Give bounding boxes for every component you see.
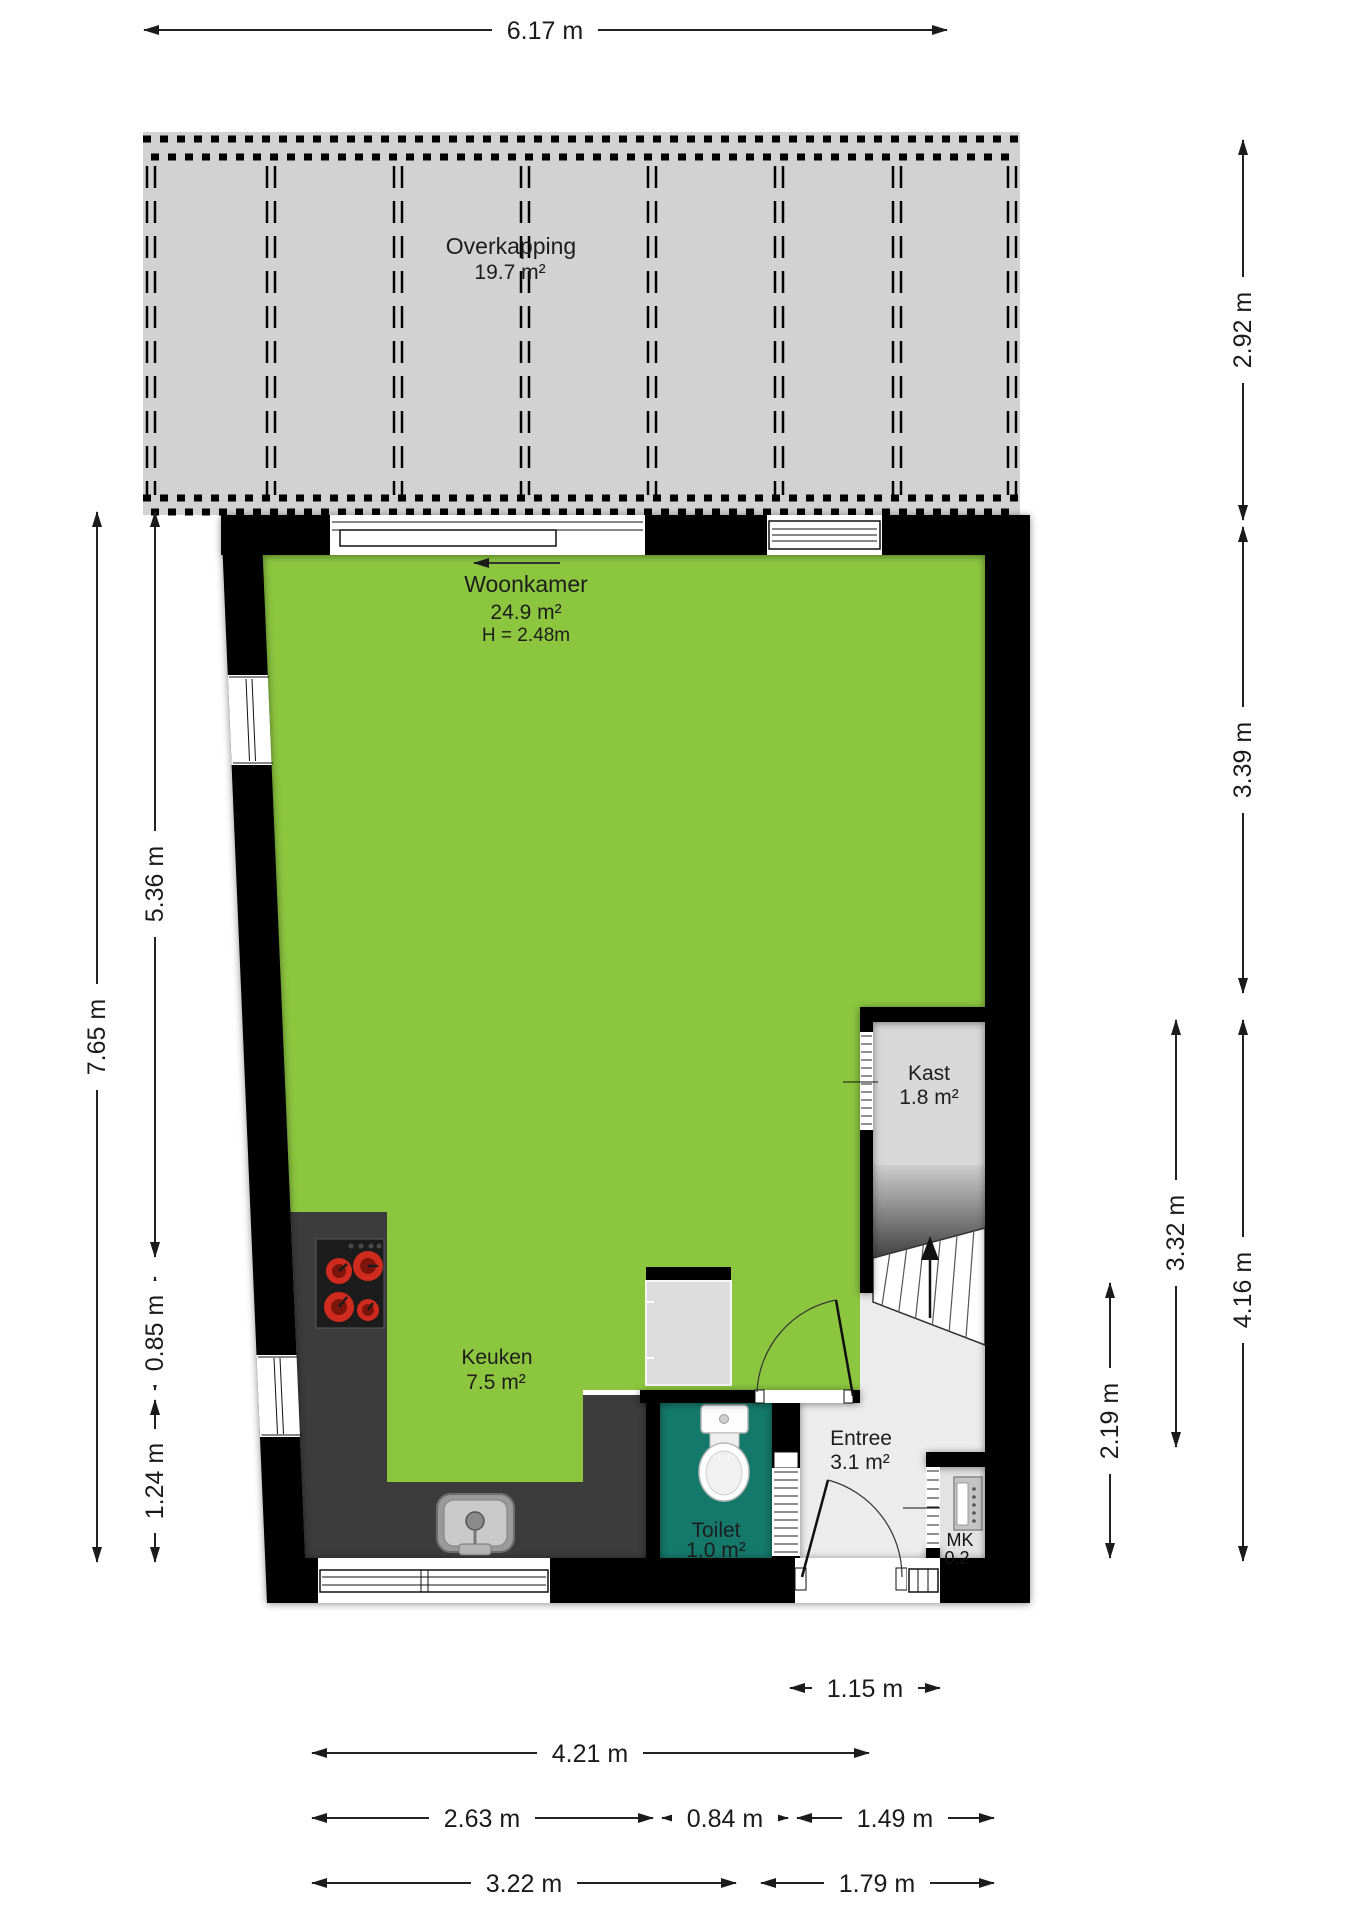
front-door-opening bbox=[795, 1558, 907, 1603]
overkapping-canopy: Overkapping 19.7 m² bbox=[143, 132, 1020, 515]
mk-electrical-panel bbox=[954, 1477, 982, 1530]
window-left-lower-opening bbox=[257, 1355, 301, 1437]
dim-right-entree-text: 2.19 m bbox=[1096, 1383, 1124, 1459]
dim-bottom-toilet-text: 0.84 m bbox=[687, 1805, 763, 1833]
kast-door-opening bbox=[860, 1032, 873, 1130]
dim-bottom-entree: 1.49 m bbox=[797, 1802, 994, 1834]
dim-bottom-left-text: 3.22 m bbox=[486, 1870, 562, 1898]
sidelight-opening bbox=[907, 1558, 940, 1603]
floorplan-canvas: Overkapping 19.7 m² bbox=[0, 0, 1358, 1920]
dim-bottom-keuken: 2.63 m bbox=[312, 1802, 653, 1834]
dim-right-lower-text: 4.16 m bbox=[1229, 1252, 1257, 1328]
dim-right-entree: 2.19 m bbox=[1094, 1283, 1126, 1558]
toilet-flush-button bbox=[720, 1415, 729, 1424]
dim-left-upper-text: 5.36 m bbox=[141, 846, 169, 922]
dim-top-width-text: 6.17 m bbox=[507, 17, 583, 45]
dim-left-total: 7.65 m bbox=[81, 512, 113, 1562]
front-door-sidelight bbox=[907, 1558, 940, 1603]
dim-right-stairs-text: 3.32 m bbox=[1162, 1195, 1190, 1271]
dim-left-total-text: 7.65 m bbox=[83, 999, 111, 1075]
dim-top-width: 6.17 m bbox=[144, 14, 947, 46]
door-we-post bbox=[755, 1390, 764, 1403]
dim-bottom-door: 1.15 m bbox=[790, 1672, 940, 1704]
window-left-upper bbox=[228, 675, 273, 765]
window-bottom-opening bbox=[318, 1558, 550, 1603]
dim-bottom-entree-text: 1.49 m bbox=[857, 1805, 933, 1833]
overkapping-label: Overkapping bbox=[446, 233, 576, 259]
dim-bottom-door-text: 1.15 m bbox=[827, 1675, 903, 1703]
dim-left-window-text: 0.85 m bbox=[141, 1295, 169, 1371]
door-we-opening bbox=[755, 1390, 853, 1403]
toilet-area: 1.0 m² bbox=[686, 1539, 746, 1562]
dim-right-stairs: 3.32 m bbox=[1160, 1020, 1192, 1447]
keuken-label: Keuken bbox=[461, 1346, 532, 1369]
dim-right-woonkamer: 3.39 m bbox=[1227, 527, 1259, 993]
woonkamer-height: H = 2.48m bbox=[482, 625, 570, 646]
dim-bottom-total-text: 4.21 m bbox=[552, 1740, 628, 1768]
sink-drain bbox=[466, 1512, 484, 1530]
woonkamer-label: Woonkamer bbox=[464, 571, 588, 597]
kast-area: 1.8 m² bbox=[899, 1086, 959, 1109]
toilet-seat bbox=[706, 1451, 742, 1495]
toilet-door bbox=[772, 1452, 800, 1556]
keuken-area: 7.5 m² bbox=[466, 1371, 526, 1394]
dim-right-overkapping: 2.92 m bbox=[1227, 140, 1259, 520]
dim-right-overkapping-text: 2.92 m bbox=[1229, 292, 1257, 368]
sink-faucet-base bbox=[459, 1544, 491, 1555]
window-bottom-kitchen bbox=[318, 1558, 550, 1603]
kitchen-sink bbox=[437, 1494, 514, 1555]
mk-label: MK bbox=[947, 1530, 974, 1550]
window-top bbox=[767, 515, 882, 555]
dim-left-lower-text: 1.24 m bbox=[141, 1443, 169, 1519]
woonkamer-area: 24.9 m² bbox=[490, 601, 561, 624]
dim-left-upper: 5.36 m bbox=[139, 512, 171, 1257]
mk-area: 0.2 bbox=[944, 1548, 969, 1568]
dim-right-woonkamer-text: 3.39 m bbox=[1229, 722, 1257, 798]
floorplan-page: Overkapping 19.7 m² bbox=[0, 0, 1358, 1920]
wall-mk-stub bbox=[926, 1548, 940, 1558]
dim-bottom-keuken-text: 2.63 m bbox=[444, 1805, 520, 1833]
dim-left-window: 0.85 m bbox=[139, 1277, 171, 1390]
dim-left-lower: 1.24 m bbox=[139, 1400, 171, 1562]
dim-bottom-total: 4.21 m bbox=[312, 1737, 869, 1769]
window-left-lower bbox=[257, 1355, 302, 1437]
kast-label: Kast bbox=[908, 1062, 950, 1085]
dim-right-lower: 4.16 m bbox=[1227, 1020, 1259, 1561]
window-left-upper-opening bbox=[228, 675, 272, 765]
dim-bottom-right-text: 1.79 m bbox=[839, 1870, 915, 1898]
stove-cooktop bbox=[316, 1239, 384, 1328]
dim-bottom-toilet: 0.84 m bbox=[662, 1802, 788, 1834]
sliding-door-panel bbox=[340, 530, 556, 546]
cabinet-wall-stub bbox=[646, 1267, 731, 1281]
cabinet-body bbox=[646, 1281, 731, 1385]
dim-bottom-left: 3.22 m bbox=[312, 1867, 736, 1899]
wall-mk-top bbox=[926, 1452, 985, 1467]
wall-kast-top bbox=[860, 1007, 985, 1022]
entree-label: Entree bbox=[830, 1427, 892, 1450]
overkapping-area: 19.7 m² bbox=[474, 261, 545, 284]
entree-area: 3.1 m² bbox=[830, 1451, 890, 1474]
toilet-fixture bbox=[699, 1405, 749, 1501]
wall-toilet-left bbox=[646, 1403, 660, 1558]
toilet-door-cap bbox=[774, 1452, 798, 1468]
dim-bottom-right: 1.79 m bbox=[761, 1867, 994, 1899]
wall-right bbox=[985, 515, 1030, 1603]
panel-door bbox=[957, 1483, 968, 1525]
keuken-cabinet bbox=[646, 1267, 731, 1385]
